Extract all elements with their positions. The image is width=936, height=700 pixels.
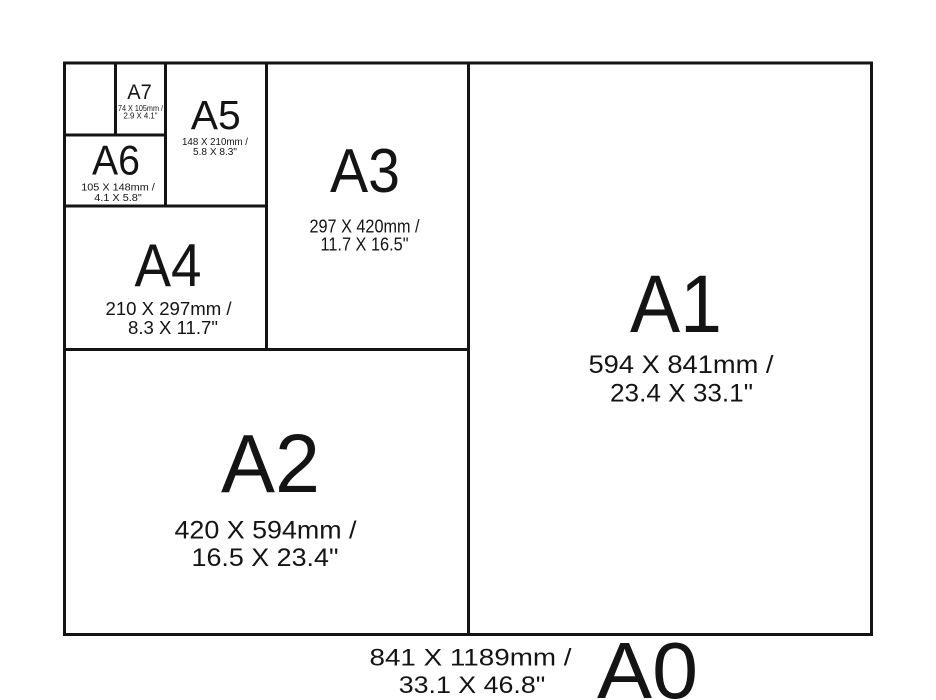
svg-text:A7: A7 <box>127 81 152 104</box>
svg-text:A0: A0 <box>597 626 698 700</box>
svg-text:A6: A6 <box>92 137 140 184</box>
svg-text:A2: A2 <box>221 417 320 510</box>
svg-text:A3: A3 <box>330 137 400 206</box>
svg-text:16.5 X 23.4": 16.5 X 23.4" <box>192 544 339 572</box>
svg-text:841 X 1189mm /: 841 X 1189mm / <box>370 645 572 672</box>
svg-text:210 X 297mm /: 210 X 297mm / <box>106 299 232 319</box>
svg-text:A1: A1 <box>630 259 722 350</box>
svg-text:4.1 X 5.8": 4.1 X 5.8" <box>94 193 142 204</box>
svg-text:2.9 X 4.1": 2.9 X 4.1" <box>124 112 158 121</box>
svg-text:23.4 X 33.1": 23.4 X 33.1" <box>610 380 753 408</box>
svg-text:A4: A4 <box>135 232 202 299</box>
svg-text:A5: A5 <box>191 92 241 138</box>
svg-text:11.7 X 16.5": 11.7 X 16.5" <box>321 235 409 255</box>
svg-text:105 X 148mm /: 105 X 148mm / <box>81 183 155 194</box>
svg-text:33.1 X 46.8": 33.1 X 46.8" <box>399 672 546 699</box>
svg-text:297 X 420mm /: 297 X 420mm / <box>310 217 420 237</box>
svg-text:5.8 X 8.3": 5.8 X 8.3" <box>193 147 237 158</box>
svg-text:594 X 841mm /: 594 X 841mm / <box>589 351 774 379</box>
svg-text:420 X 594mm /: 420 X 594mm / <box>175 517 357 545</box>
svg-text:8.3 X 11.7": 8.3 X 11.7" <box>128 318 218 338</box>
